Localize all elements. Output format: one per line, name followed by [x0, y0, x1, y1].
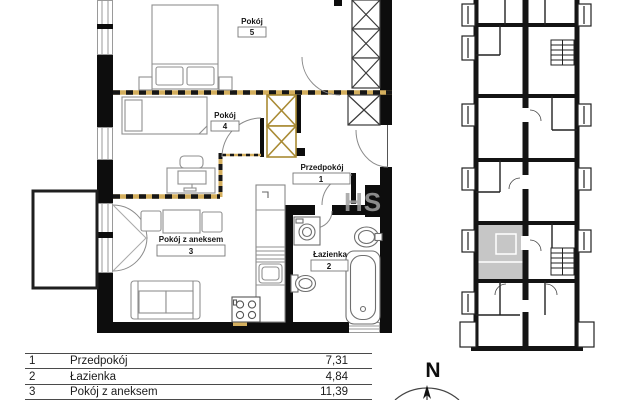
north-label: N [425, 359, 440, 382]
room-label-pokoj-5: Pokój [241, 17, 263, 26]
room-number-3: 3 [189, 247, 194, 256]
room-label-pokoj-z-aneksem: Pokój z aneksem [159, 235, 223, 244]
table-row: 1 Przedpokój 7,31 [25, 353, 372, 368]
hatched-wardrobe [267, 95, 296, 157]
room-name-cell: Pokój z aneksem [70, 386, 287, 398]
table-row: 3 Pokój z aneksem 11,39 [25, 384, 372, 400]
row-number: 1 [25, 355, 70, 367]
stairwell [551, 40, 574, 275]
room-area-cell: 7,31 [287, 355, 372, 367]
room-label-lazienka: Łazienka [313, 250, 347, 259]
room-area-cell: 11,39 [287, 386, 372, 398]
hatched-shaft [348, 0, 380, 125]
north-compass: N [395, 359, 459, 400]
row-number: 2 [25, 371, 70, 383]
room-name-cell: Łazienka [70, 371, 287, 383]
room-name-cell: Przedpokój [70, 355, 287, 367]
watermark-text: HS [344, 187, 382, 217]
building-overview [460, 0, 594, 350]
room-number-4: 4 [223, 122, 228, 131]
table-row: 2 Łazienka 4,84 [25, 368, 372, 383]
room-label-pokoj-4: Pokój [214, 111, 236, 120]
balcony [33, 191, 97, 288]
room-number-1: 1 [319, 175, 324, 184]
furniture [122, 5, 285, 322]
room-number-2: 2 [327, 262, 332, 271]
room-label-przedpokoj: Przedpokój [300, 163, 343, 172]
highlighted-unit [477, 223, 524, 282]
area-table: 1 Przedpokój 7,31 2 Łazienka 4,84 3 Pokó… [25, 353, 372, 400]
floor-plan-svg: Pokój 5 Pokój 4 Przedpokój 1 Pokój z ane… [0, 0, 620, 400]
apartment-floor-plan: Pokój 5 Pokój 4 Przedpokój 1 Pokój z ane… [33, 0, 392, 333]
room-number-5: 5 [250, 28, 255, 37]
stove [232, 297, 260, 322]
row-number: 3 [25, 386, 70, 398]
floorplan-page: Pokój 5 Pokój 4 Przedpokój 1 Pokój z ane… [0, 0, 620, 400]
room-area-cell: 4,84 [287, 371, 372, 383]
